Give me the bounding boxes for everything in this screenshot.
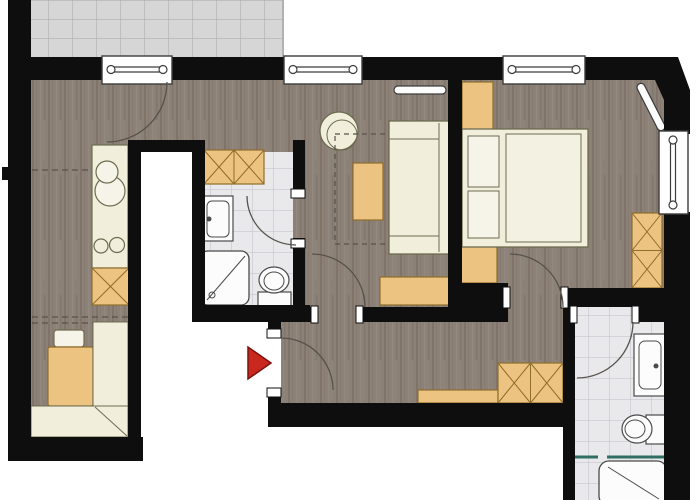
shower-tray xyxy=(200,251,249,305)
wall-top-b xyxy=(172,57,285,80)
bedroom-window xyxy=(503,56,585,84)
bedroom-side-window-pin xyxy=(669,136,677,144)
living-room-window-pin xyxy=(289,66,297,74)
wall-right-upper xyxy=(664,98,690,134)
living-radiator xyxy=(394,86,446,94)
bedroom-window-pin xyxy=(508,66,516,74)
balcony-door-window-pin xyxy=(107,66,115,74)
hob-burner-left xyxy=(94,239,108,253)
bathroom-wardrobe xyxy=(204,150,264,184)
floor-plan-canvas xyxy=(0,0,700,500)
wall-top-d xyxy=(584,57,655,80)
second-bathroom-sink-faucet xyxy=(654,364,659,369)
jamb-living-door-right xyxy=(356,306,363,323)
jamb-bath2-door-right xyxy=(632,306,639,323)
small-room-bed-pillow xyxy=(54,330,84,347)
wall-top-c xyxy=(362,57,504,80)
jamb-entry-door-top xyxy=(267,329,281,338)
floor-plan xyxy=(0,0,700,500)
toilet-cistern xyxy=(258,292,291,306)
living-room-window-pin xyxy=(349,66,357,74)
armchair-outer xyxy=(320,112,358,150)
bed-pillow-bottom xyxy=(468,191,499,238)
wall-living-bottom-b xyxy=(357,307,462,322)
jamb-bathroom-door-bottom xyxy=(291,239,305,248)
hob-burner-right xyxy=(110,238,125,253)
jamb-bedroom-door-left xyxy=(503,287,510,308)
second-shower-tray xyxy=(599,461,667,500)
wall-hall-jog xyxy=(448,283,508,322)
bathroom-sink-faucet xyxy=(207,217,212,222)
corner-bench-horizontal xyxy=(31,406,128,437)
wall-shaft-left xyxy=(128,140,141,461)
bedroom-window-pin xyxy=(572,66,580,74)
wall-left xyxy=(8,0,31,461)
balcony-door-window xyxy=(102,56,172,84)
entrance-arrow xyxy=(248,347,271,379)
wall-right-lower xyxy=(664,212,690,500)
kitchen-tall-cabinet xyxy=(92,268,129,305)
small-room-bed xyxy=(48,347,93,406)
wall-living-bedroom-divider xyxy=(448,57,462,288)
living-sideboard xyxy=(380,277,455,305)
sofa-base xyxy=(389,121,453,254)
hall-wardrobe xyxy=(498,363,563,403)
bedroom-side-window-pin xyxy=(669,201,677,209)
wall-top-a xyxy=(31,57,103,80)
balcony-door-window-pin xyxy=(159,66,167,74)
living-room-window xyxy=(284,56,362,84)
bedroom-wardrobe xyxy=(632,213,662,288)
jamb-bath2-door-left xyxy=(570,306,577,323)
wall-bottom-left xyxy=(8,437,143,461)
wall-hall-bottom xyxy=(268,403,575,427)
second-toilet-bowl xyxy=(622,415,652,443)
wall-bath2-left xyxy=(563,322,575,500)
hall-sideboard xyxy=(418,390,498,403)
bedroom-nightstand-bottom xyxy=(458,245,497,283)
bedroom-side-window xyxy=(659,131,688,214)
bedroom-nightstand-top xyxy=(462,82,493,130)
bed-duvet xyxy=(506,134,581,242)
balcony-floor xyxy=(31,0,283,57)
wall-left-nub xyxy=(2,167,9,180)
kitchen-sink-bowl xyxy=(96,161,118,183)
jamb-bathroom-door-top xyxy=(291,189,305,198)
coffee-table xyxy=(353,163,383,220)
jamb-entry-door-bottom xyxy=(267,388,281,397)
toilet-bowl xyxy=(259,267,289,293)
bed-pillow-top xyxy=(468,136,499,187)
jamb-living-door-left xyxy=(311,306,318,323)
wall-bathroom-right-upper xyxy=(293,140,305,197)
wall-shaft-right xyxy=(192,140,205,322)
